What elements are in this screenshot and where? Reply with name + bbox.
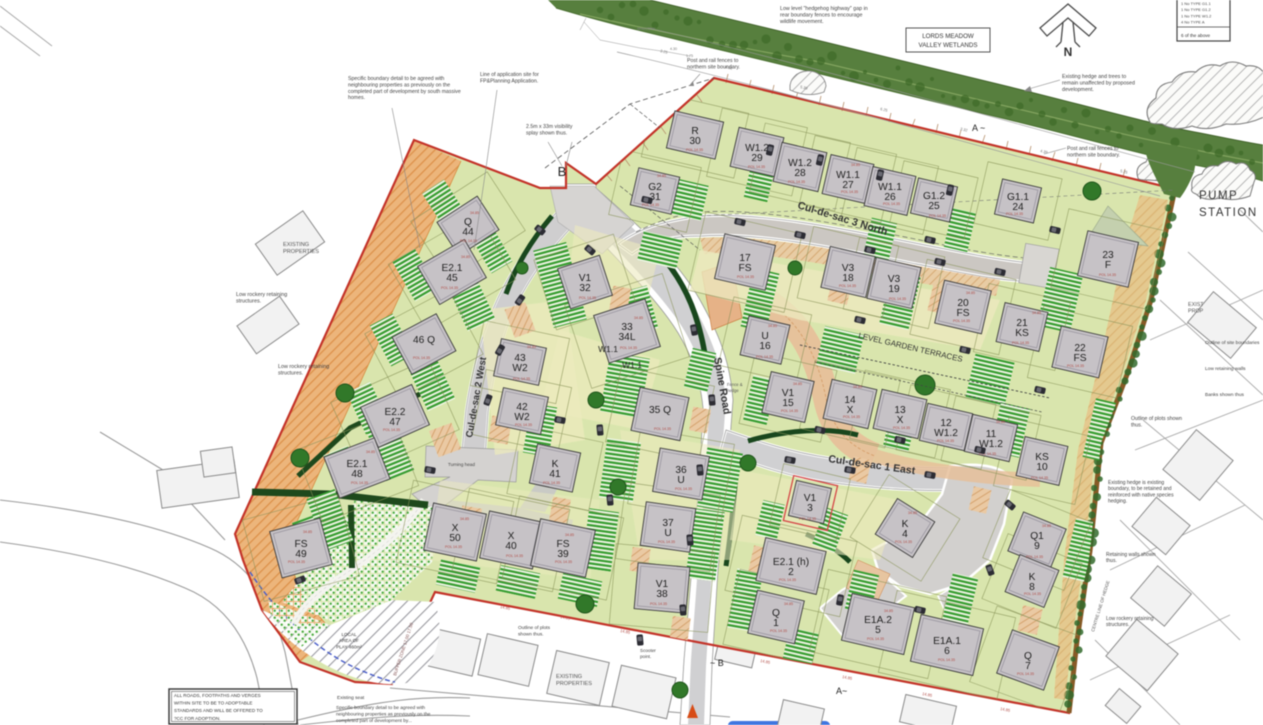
svg-text:18: 18 <box>842 273 854 284</box>
svg-text:34L: 34L <box>619 332 636 343</box>
svg-text:KS: KS <box>1015 328 1029 339</box>
svg-text:POL 14.35: POL 14.35 <box>779 578 796 582</box>
svg-text:POL 14.35: POL 14.35 <box>889 297 906 301</box>
svg-text:POL 14.35: POL 14.35 <box>788 180 805 184</box>
svg-text:PROP: PROP <box>1188 309 1204 315</box>
svg-text:38: 38 <box>656 589 668 600</box>
svg-text:16: 16 <box>759 341 771 352</box>
svg-text:Retaining walls shown: Retaining walls shown <box>1106 552 1156 558</box>
svg-text:POL 14.35: POL 14.35 <box>686 148 703 152</box>
svg-text:41: 41 <box>549 469 561 480</box>
svg-text:LORDS MEADOW: LORDS MEADOW <box>922 33 974 40</box>
svg-text:X: X <box>897 415 904 426</box>
svg-text:34.85: 34.85 <box>793 382 802 386</box>
svg-text:LOCAL: LOCAL <box>341 632 357 637</box>
svg-text:40: 40 <box>505 541 517 552</box>
svg-text:POL 14.35: POL 14.35 <box>841 190 858 194</box>
svg-text:5: 5 <box>875 625 881 636</box>
svg-text:Turning head: Turning head <box>448 462 475 467</box>
svg-text:POL 14.35: POL 14.35 <box>893 426 910 430</box>
svg-text:PROPERTIES: PROPERTIES <box>283 249 319 255</box>
svg-text:Low rockery retaining: Low rockery retaining <box>278 364 329 370</box>
svg-text:Banks shown thus: Banks shown thus <box>1205 392 1245 398</box>
svg-text:25: 25 <box>928 201 940 212</box>
svg-text:49: 49 <box>295 549 307 560</box>
svg-text:POL 14.35: POL 14.35 <box>579 296 596 300</box>
svg-text:30: 30 <box>689 136 701 147</box>
svg-text:N: N <box>1064 45 1073 59</box>
svg-text:34.85: 34.85 <box>884 609 893 613</box>
svg-text:POL 14.35: POL 14.35 <box>506 554 523 558</box>
svg-text:34.85: 34.85 <box>768 324 777 328</box>
svg-text:4.30: 4.30 <box>670 47 677 51</box>
svg-text:POL 14.35: POL 14.35 <box>383 428 400 432</box>
svg-text:development.: development. <box>1062 87 1094 93</box>
svg-text:Existing hedge and trees to: Existing hedge and trees to <box>1062 74 1126 80</box>
svg-text:Specific boundary detail to be: Specific boundary detail to be agreed wi… <box>348 76 444 82</box>
svg-text:point.: point. <box>640 654 651 659</box>
svg-text:34.85: 34.85 <box>1032 311 1041 315</box>
svg-text:POL 14.35: POL 14.35 <box>929 214 946 218</box>
svg-text:34.85: 34.85 <box>461 255 470 259</box>
svg-text:boundary, to be retained and: boundary, to be retained and <box>1108 486 1172 492</box>
svg-text:wildlife movement.: wildlife movement. <box>780 19 824 25</box>
svg-text:34.85: 34.85 <box>851 163 860 167</box>
svg-text:U: U <box>677 475 684 486</box>
svg-text:34.85: 34.85 <box>853 385 862 389</box>
svg-text:VALLEY WETLANDS: VALLEY WETLANDS <box>919 42 978 49</box>
svg-text:19: 19 <box>888 284 900 295</box>
svg-text:structures.: structures. <box>1106 622 1129 628</box>
svg-text:ALL ROADS, FOOTPATHS AND VERGE: ALL ROADS, FOOTPATHS AND VERGES <box>174 693 261 698</box>
svg-text:POL 14.35: POL 14.35 <box>843 415 860 419</box>
svg-text:Existing hedge is existing: Existing hedge is existing <box>1108 480 1164 486</box>
svg-text:structures.: structures. <box>278 371 303 377</box>
svg-text:PROPERTIES: PROPERTIES <box>556 681 592 687</box>
svg-text:POL 14.35: POL 14.35 <box>938 658 955 662</box>
svg-text:W1.1: W1.1 <box>598 344 618 354</box>
svg-text:34.85: 34.85 <box>996 420 1005 424</box>
svg-text:homes.: homes. <box>348 95 365 101</box>
svg-text:POL 14.35: POL 14.35 <box>937 439 954 443</box>
svg-text:34.85: 34.85 <box>657 174 666 178</box>
svg-text:STANDARDS AND WILL BE OFFERED: STANDARDS AND WILL BE OFFERED TO <box>174 708 263 713</box>
svg-text:15: 15 <box>782 398 794 409</box>
svg-text:Outline of plots shown: Outline of plots shown <box>1131 416 1182 422</box>
svg-text:50: 50 <box>449 533 461 544</box>
svg-text:34.85: 34.85 <box>1042 524 1051 528</box>
svg-text:48: 48 <box>351 469 363 480</box>
svg-text:POL 14.35: POL 14.35 <box>413 356 430 360</box>
svg-text:F: F <box>1105 260 1111 271</box>
svg-text:Line of application site for: Line of application site for <box>480 72 539 78</box>
svg-text:Outline of site boundaries: Outline of site boundaries <box>1205 340 1260 346</box>
svg-text:2: 2 <box>788 567 794 578</box>
svg-text:1: 1 <box>773 618 779 629</box>
svg-text:POL 14.35: POL 14.35 <box>895 540 912 544</box>
svg-text:45: 45 <box>446 273 458 284</box>
svg-text:Post and rail fences to: Post and rail fences to <box>687 58 738 64</box>
svg-text:Outline of plots: Outline of plots <box>518 625 551 631</box>
svg-text:1 No TYPE W1.2: 1 No TYPE W1.2 <box>1181 13 1212 18</box>
svg-text:32: 32 <box>579 283 591 294</box>
svg-text:44: 44 <box>462 227 474 238</box>
svg-text:6: 6 <box>944 646 950 657</box>
svg-text:completed part of development: completed part of development by south m… <box>348 89 461 95</box>
svg-text:POL 14.35: POL 14.35 <box>748 165 765 169</box>
svg-text:POL 14.35: POL 14.35 <box>658 540 675 544</box>
svg-text:47: 47 <box>389 417 401 428</box>
svg-text:Low retaining walls: Low retaining walls <box>1205 366 1246 372</box>
svg-text:W1.2: W1.2 <box>934 428 958 439</box>
svg-text:POL 14.35: POL 14.35 <box>515 423 532 427</box>
svg-text:28: 28 <box>794 168 806 179</box>
svg-text:splay shown thus.: splay shown thus. <box>526 130 567 136</box>
svg-text:Low rockery retaining: Low rockery retaining <box>1106 616 1154 622</box>
svg-text:FP&Planning Application.: FP&Planning Application. <box>480 78 538 84</box>
svg-text:POL 14.35: POL 14.35 <box>288 560 305 564</box>
svg-text:FS: FS <box>738 263 751 274</box>
svg-text:A ~: A ~ <box>972 123 985 133</box>
svg-text:neighbouring properties as pre: neighbouring properties as previously on… <box>336 711 431 717</box>
svg-text:POL 14.35: POL 14.35 <box>543 481 560 485</box>
svg-text:34.85: 34.85 <box>565 533 574 537</box>
svg-text:shown thus.: shown thus. <box>518 631 544 637</box>
svg-text:EXISTING: EXISTING <box>556 674 582 680</box>
svg-text:34.85: 34.85 <box>784 602 793 606</box>
svg-text:POL 14.35: POL 14.35 <box>1067 364 1084 368</box>
svg-text:STATION: STATION <box>1199 207 1258 219</box>
svg-text:thus.: thus. <box>1106 558 1117 564</box>
svg-text:POL 14.35: POL 14.35 <box>883 202 900 206</box>
svg-text:POL 14.35: POL 14.35 <box>460 239 477 243</box>
svg-text:U: U <box>664 528 671 539</box>
svg-text:34.85: 34.85 <box>527 345 536 349</box>
svg-text:?CC FOR ADOPTION.: ?CC FOR ADOPTION. <box>174 716 220 721</box>
svg-text:POL 14.35: POL 14.35 <box>513 377 530 381</box>
svg-text:34.85: 34.85 <box>470 211 479 215</box>
svg-text:completed part of development: completed part of development by... <box>336 718 412 724</box>
svg-text:39: 39 <box>557 549 569 560</box>
svg-text:Low level "hedgehog highway" g: Low level "hedgehog highway" gap in <box>780 6 868 12</box>
svg-text:POL 14.35: POL 14.35 <box>799 517 816 521</box>
svg-text:POL 14.35: POL 14.35 <box>441 286 458 290</box>
svg-text:Fence &: Fence & <box>727 382 743 387</box>
svg-text:Specific boundary detail to be: Specific boundary detail to be agreed wi… <box>336 705 425 711</box>
svg-text:AREA OF: AREA OF <box>339 638 359 643</box>
svg-text:29: 29 <box>751 153 763 164</box>
svg-text:W2: W2 <box>514 412 530 423</box>
svg-text:46 Q: 46 Q <box>413 335 435 346</box>
svg-text:35 Q: 35 Q <box>649 405 671 416</box>
svg-text:structures.: structures. <box>236 299 261 305</box>
svg-text:~ B: ~ B <box>710 658 724 668</box>
svg-text:rear boundary fences to encour: rear boundary fences to encourage <box>780 13 863 19</box>
svg-text:POL 14.35: POL 14.35 <box>1031 476 1048 480</box>
svg-text:PUMP: PUMP <box>1199 190 1238 202</box>
svg-text:POL 14.35: POL 14.35 <box>675 487 692 491</box>
svg-text:3: 3 <box>807 503 813 514</box>
svg-text:northern site boundary.: northern site boundary. <box>1067 152 1120 158</box>
svg-text:thus.: thus. <box>1131 422 1142 428</box>
svg-text:POL 14.35: POL 14.35 <box>1024 592 1041 596</box>
svg-text:POL 14.35: POL 14.35 <box>1006 212 1023 216</box>
svg-text:WITHIN SITE TO BE TO ADOPTABLE: WITHIN SITE TO BE TO ADOPTABLE <box>174 701 252 706</box>
svg-text:4 No TYPE A: 4 No TYPE A <box>1181 20 1205 25</box>
svg-text:Existing seat: Existing seat <box>337 695 365 701</box>
svg-text:9: 9 <box>1034 541 1040 552</box>
svg-text:6 of the above: 6 of the above <box>1181 33 1211 38</box>
svg-text:10: 10 <box>1036 462 1048 473</box>
svg-text:1 No TYPE G1.2: 1 No TYPE G1.2 <box>1181 7 1211 12</box>
svg-text:Post and rail fences to: Post and rail fences to <box>1067 146 1118 152</box>
svg-text:7: 7 <box>1025 661 1031 672</box>
svg-text:SPARROW: SPARROW <box>637 27 656 31</box>
svg-text:POL 14.35: POL 14.35 <box>351 481 368 485</box>
svg-text:34.85: 34.85 <box>366 450 375 454</box>
svg-text:EXIST: EXIST <box>1188 302 1204 308</box>
svg-text:34.85: 34.85 <box>303 530 312 534</box>
svg-text:POL 14.35: POL 14.35 <box>770 629 787 633</box>
svg-text:neighbouring properties as pre: neighbouring properties as previously on… <box>348 82 450 88</box>
svg-text:POL 14.35: POL 14.35 <box>1012 341 1029 345</box>
svg-text:northern site boundary.: northern site boundary. <box>687 64 740 70</box>
svg-text:POL 14.35: POL 14.35 <box>953 319 970 323</box>
svg-text:34.85: 34.85 <box>908 511 917 515</box>
svg-text:W2: W2 <box>512 363 528 374</box>
svg-text:reinforced with native species: reinforced with native species <box>1108 492 1174 498</box>
svg-text:FS: FS <box>956 308 969 319</box>
svg-text:POL 14.35: POL 14.35 <box>1017 672 1034 676</box>
svg-text:POL 14.35: POL 14.35 <box>650 602 667 606</box>
svg-text:POL 14.35: POL 14.35 <box>654 427 671 431</box>
svg-text:A~: A~ <box>836 686 847 696</box>
svg-text:W1.1: W1.1 <box>622 360 642 370</box>
svg-text:POL 14.35: POL 14.35 <box>445 545 462 549</box>
svg-text:PLAY 460m²: PLAY 460m² <box>336 644 362 649</box>
svg-text:POL 14.35: POL 14.35 <box>737 275 754 279</box>
svg-text:POL 14.35: POL 14.35 <box>1099 273 1116 277</box>
svg-text:remain unaffected by proposed: remain unaffected by proposed <box>1062 81 1135 87</box>
svg-text:POL 14.35: POL 14.35 <box>839 284 856 288</box>
svg-text:4: 4 <box>902 529 908 540</box>
svg-text:1 No TYPE G1.1: 1 No TYPE G1.1 <box>1181 1 1211 6</box>
svg-text:POL 14.35: POL 14.35 <box>1026 555 1043 559</box>
svg-text:POL 14.35: POL 14.35 <box>781 409 798 413</box>
svg-text:POL 14.35: POL 14.35 <box>555 560 572 564</box>
svg-text:2.5m x 33m visibility: 2.5m x 33m visibility <box>526 124 573 130</box>
svg-text:POL 14.35: POL 14.35 <box>620 346 637 350</box>
svg-text:FS: FS <box>1073 353 1086 364</box>
svg-text:34.85: 34.85 <box>460 517 469 521</box>
svg-text:34.85: 34.85 <box>634 316 643 320</box>
svg-text:POL 14.35: POL 14.35 <box>756 355 773 359</box>
svg-text:EXISTING: EXISTING <box>283 242 309 248</box>
svg-text:B: B <box>558 164 567 179</box>
svg-text:POL 14.35: POL 14.35 <box>867 637 884 641</box>
svg-text:Low rockery retaining: Low rockery retaining <box>236 292 287 298</box>
svg-text:34.85: 34.85 <box>966 291 975 295</box>
svg-text:Scooter: Scooter <box>640 648 656 653</box>
svg-text:hedging.: hedging. <box>1108 499 1127 505</box>
